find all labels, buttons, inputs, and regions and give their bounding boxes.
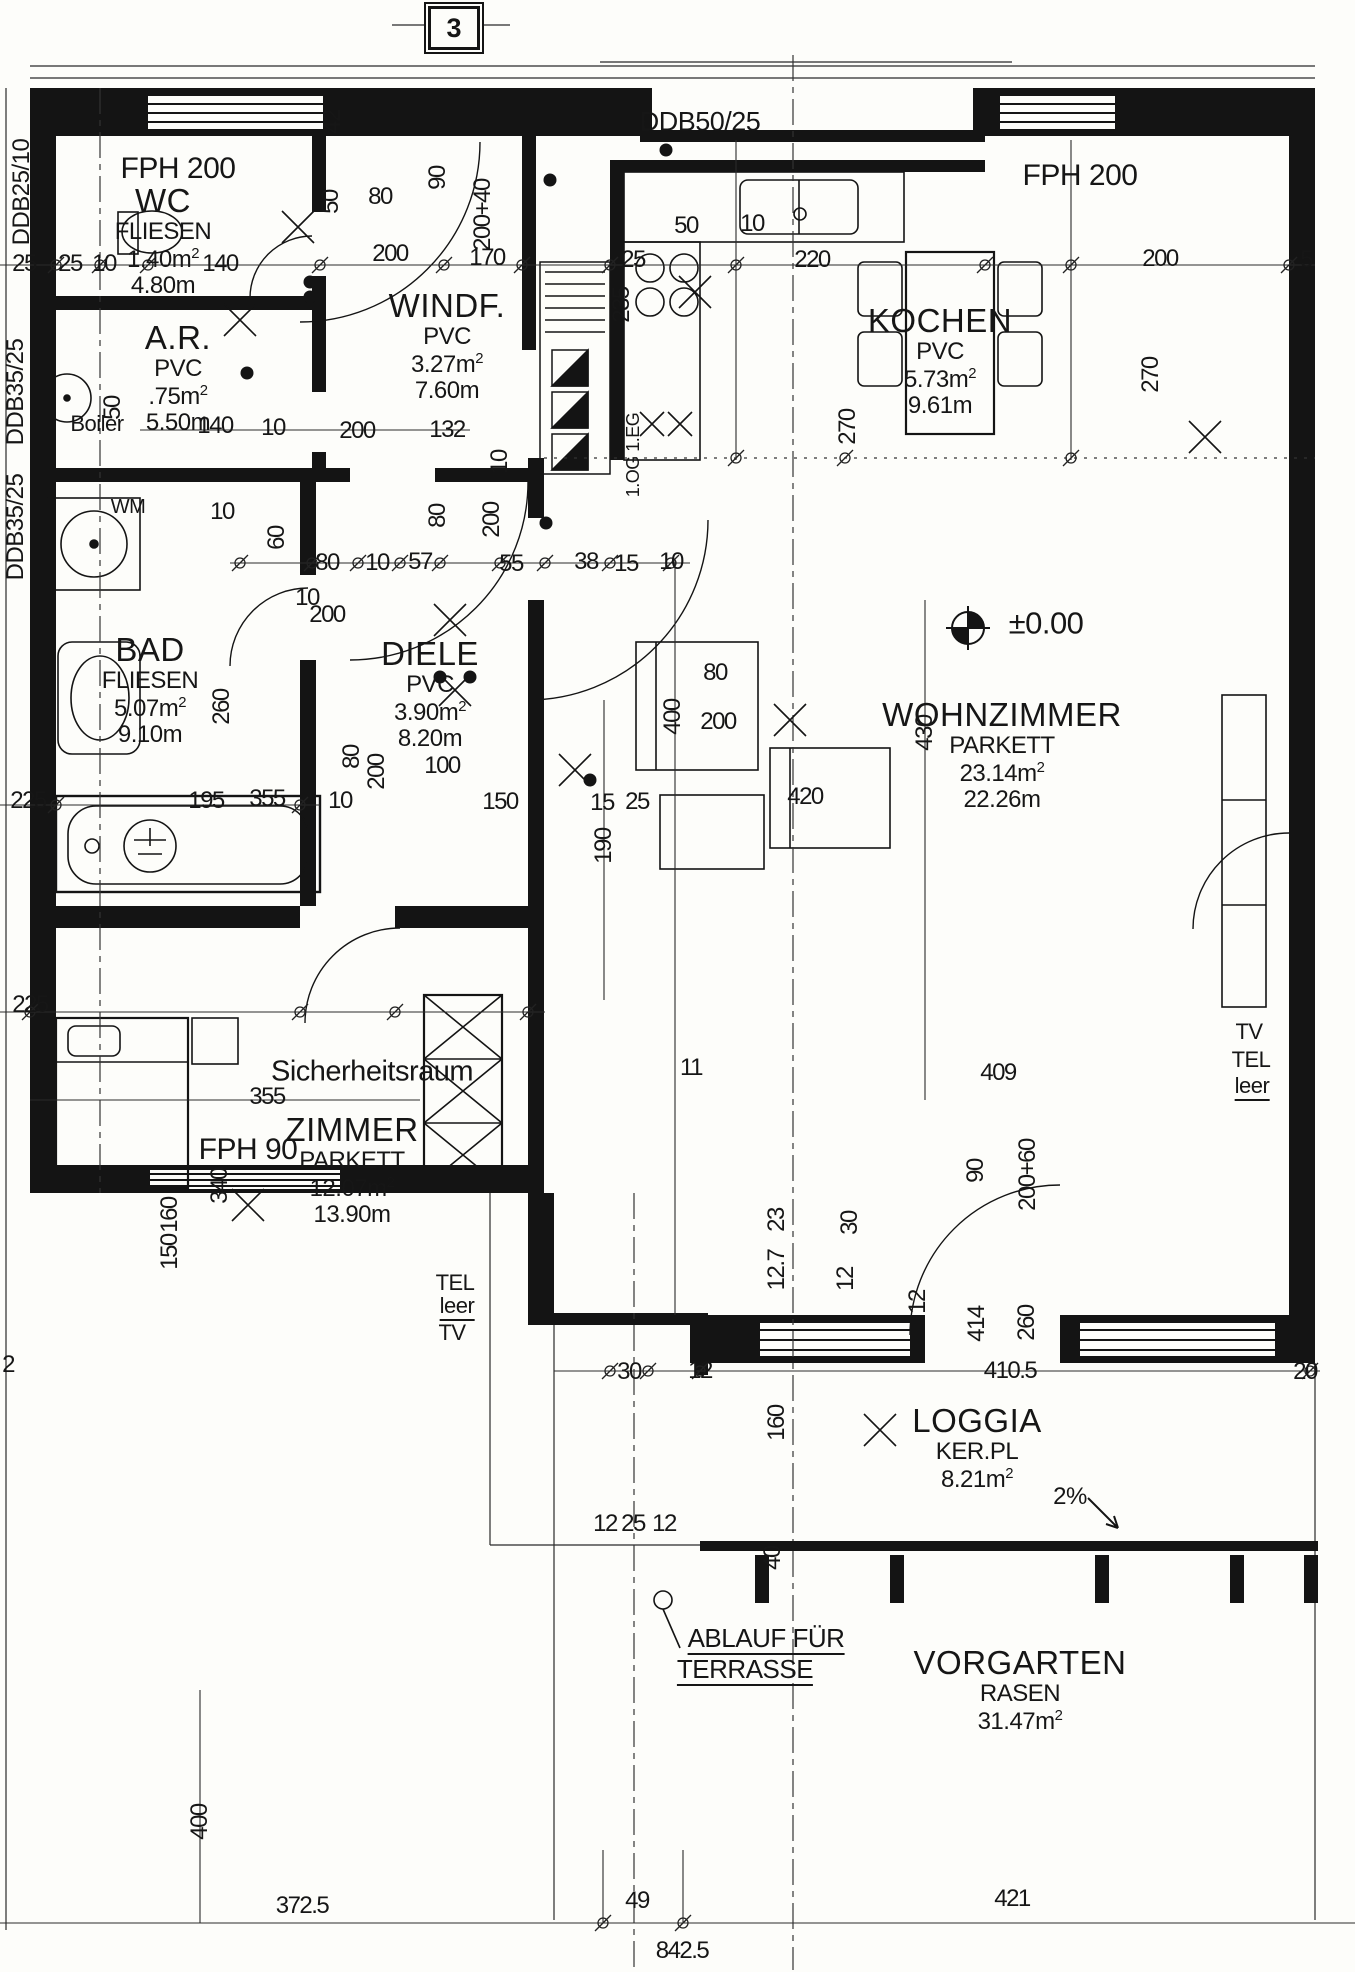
room-floor: KER.PL: [912, 1439, 1042, 1465]
annotation-tel-left: TEL: [436, 1272, 475, 1294]
room-area: 23.14m2: [882, 760, 1122, 787]
dimension-label: 12: [906, 1290, 930, 1314]
room-perimeter: 7.60m: [389, 378, 506, 404]
dimension-label: 10: [92, 252, 116, 276]
room-name: BAD: [102, 632, 199, 668]
room-perimeter: 13.90m: [285, 1202, 418, 1228]
dimension-label: 355: [249, 787, 285, 811]
dimension-label: 160: [765, 1405, 789, 1441]
dimension-label: 200: [1142, 247, 1178, 271]
room-area: 5.07m2: [102, 695, 199, 722]
dimension-label: 132: [429, 418, 465, 442]
dimension-label: 150: [482, 790, 518, 814]
dimension-label: 842.5: [656, 1939, 709, 1963]
room-floor: PARKETT: [285, 1148, 418, 1174]
annotation-boiler: Boiler: [70, 413, 123, 435]
dimension-label: 25: [58, 252, 82, 276]
annotation-leer-left: leer: [440, 1295, 475, 1321]
annotation-fph-200-right: FPH 200: [1023, 161, 1138, 191]
dimension-label: 80: [368, 185, 392, 209]
dimension-label: 260: [210, 689, 234, 725]
dimension-label: 200: [480, 502, 504, 538]
annotation-fph-200-left: FPH 200: [121, 154, 236, 184]
dimension-label: 225: [12, 993, 48, 1017]
room-floor: FLIESEN: [102, 668, 199, 694]
dimension-label: 200+60: [1016, 1139, 1040, 1211]
dimension-label: 10: [328, 789, 352, 813]
dimension-label: 11: [680, 1056, 702, 1080]
room-floor: FLIESEN: [115, 219, 212, 245]
annotation-fph-90: FPH 90: [199, 1135, 298, 1165]
room-floor: RASEN: [914, 1681, 1127, 1707]
room-perimeter: 9.61m: [868, 393, 1012, 419]
room-label-vorgarten: VORGARTENRASEN31.47m2: [914, 1645, 1127, 1735]
floor-plan: 252510140200170255010220200542508090200+…: [0, 0, 1355, 1972]
dimension-label: 12: [688, 1359, 712, 1383]
dimension-label: 400: [188, 1804, 212, 1840]
label-layer: 252510140200170255010220200542508090200+…: [0, 0, 1355, 1972]
dimension-label: 12: [593, 1512, 617, 1536]
dimension-label: 220: [794, 248, 830, 272]
dimension-label: 50: [319, 190, 343, 214]
dimension-label: 25: [621, 1512, 645, 1536]
dimension-label: 410.5: [984, 1359, 1037, 1383]
annotation-sicherheitsraum: Sicherheitsraum: [271, 1058, 473, 1087]
dimension-label: 50: [674, 214, 698, 238]
room-perimeter: 5.50m: [145, 410, 211, 436]
dimension-label: 100: [424, 754, 460, 778]
dimension-label: 409: [980, 1061, 1016, 1085]
annotation-og-eg: 1.OG 1.EG: [624, 413, 642, 498]
room-name: VORGARTEN: [914, 1645, 1127, 1681]
annotation-ablauf: ABLAUF FÜR: [688, 1625, 845, 1655]
dimension-label: 10: [210, 500, 234, 524]
room-label-wc: WCFLIESEN1.40m24.80m: [115, 183, 212, 299]
dimension-label: 225: [10, 789, 46, 813]
dimension-label: 190: [592, 828, 616, 864]
room-floor: PVC: [868, 339, 1012, 365]
dimension-label: 38: [574, 550, 598, 574]
dimension-label: 200: [365, 754, 389, 790]
room-area: .75m2: [145, 383, 211, 410]
annotation-tv-left: TV: [438, 1322, 465, 1344]
annotation-tel-right: TEL: [1232, 1049, 1271, 1071]
dimension-label: 5: [1300, 248, 1312, 272]
dimension-label: 10: [488, 450, 512, 474]
room-perimeter: 9.10m: [102, 722, 199, 748]
dimension-label: 25: [621, 248, 645, 272]
room-area: 12.07m2: [285, 1175, 418, 1202]
dimension-label: 10: [295, 586, 319, 610]
dimension-label: 260: [1015, 1305, 1039, 1341]
room-floor: PVC: [381, 672, 479, 698]
room-floor: PVC: [145, 356, 211, 382]
dimension-label: 200: [339, 419, 375, 443]
dimension-label: 40: [761, 1546, 785, 1570]
dimension-label: 80: [340, 745, 364, 769]
dimension-label: 80: [703, 661, 727, 685]
dimension-label: 20: [1293, 1360, 1317, 1384]
dimension-label: 200+40: [471, 179, 495, 251]
dimension-label: 150: [158, 1234, 182, 1270]
room-perimeter: 22.26m: [882, 787, 1122, 813]
room-name: WC: [115, 183, 212, 219]
dimension-label: 90: [964, 1159, 988, 1183]
room-floor: PARKETT: [882, 733, 1122, 759]
dimension-label: 400: [661, 699, 685, 735]
room-label-kochen: KOCHENPVC5.73m29.61m: [868, 303, 1012, 419]
dimension-label: 25: [625, 790, 649, 814]
annotation-ddb25-10: DDB25/10: [10, 139, 34, 246]
room-label-zimmer: ZIMMERPARKETT12.07m213.90m: [285, 1112, 418, 1228]
dimension-label: 200: [372, 242, 408, 266]
room-label-ar: A.R.PVC.75m25.50m: [145, 320, 211, 436]
dimension-label: 57: [408, 550, 432, 574]
room-area: 1.40m2: [115, 246, 212, 273]
annotation-ddb50-25: DDB50/25: [640, 109, 761, 136]
room-label-diele: DIELEPVC3.90m28.20m: [381, 636, 479, 752]
room-area: 3.90m2: [381, 699, 479, 726]
dimension-label: 80: [426, 504, 450, 528]
dimension-label: 12: [652, 1512, 676, 1536]
dimension-label: 270: [836, 409, 860, 445]
annotation-level: ±0.00: [1009, 608, 1084, 639]
room-name: LOGGIA: [912, 1403, 1042, 1439]
room-name: DIELE: [381, 636, 479, 672]
dimension-label: 30: [617, 1360, 641, 1384]
dimension-label: 414: [965, 1306, 989, 1342]
dimension-label: 10: [659, 550, 683, 574]
sheet-number: 3: [446, 13, 461, 44]
annotation-ddb35-25-a: DDB35/25: [4, 339, 28, 446]
room-name: WINDF.: [389, 288, 506, 324]
sheet-number-box: 3: [428, 6, 480, 50]
dimension-label: 10: [365, 551, 389, 575]
dimension-label: 23: [765, 1208, 789, 1232]
room-name: A.R.: [145, 320, 211, 356]
room-label-windf: WINDF.PVC3.27m27.60m: [389, 288, 506, 404]
dimension-label: 49: [625, 1889, 649, 1913]
dimension-label: 90: [426, 166, 450, 190]
dimension-label: 420: [787, 785, 823, 809]
room-area: 8.21m2: [912, 1466, 1042, 1493]
room-label-wohnzimmer: WOHNZIMMERPARKETT23.14m222.26m: [882, 697, 1122, 813]
dimension-label: 10: [740, 212, 764, 236]
annotation-ddb35-25-b: DDB35/25: [4, 474, 28, 581]
dimension-label: 42: [321, 110, 345, 134]
dimension-label: 55: [499, 552, 523, 576]
room-floor: PVC: [389, 324, 506, 350]
dimension-label: 60: [265, 526, 289, 550]
annotation-slope: 2%: [1053, 1485, 1087, 1509]
dimension-label: 340: [208, 1168, 232, 1204]
dimension-label: 12.7: [765, 1250, 789, 1291]
room-label-loggia: LOGGIAKER.PL8.21m2: [912, 1403, 1042, 1493]
annotation-leer-right: leer: [1235, 1075, 1270, 1101]
room-name: ZIMMER: [285, 1112, 418, 1148]
dimension-label: 160: [158, 1197, 182, 1233]
dimension-label: 2: [2, 1353, 14, 1377]
dimension-label: 80: [315, 551, 339, 575]
room-name: KOCHEN: [868, 303, 1012, 339]
annotation-wm: WM: [111, 497, 146, 517]
room-label-bad: BADFLIESEN5.07m29.10m: [102, 632, 199, 748]
dimension-label: 235: [610, 287, 634, 323]
room-name: WOHNZIMMER: [882, 697, 1122, 733]
dimension-label: 421: [994, 1887, 1030, 1911]
dimension-label: 15: [614, 552, 638, 576]
dimension-label: 25: [12, 252, 36, 276]
dimension-label: 195: [188, 789, 224, 813]
room-perimeter: 8.20m: [381, 726, 479, 752]
dimension-label: 270: [1139, 357, 1163, 393]
room-area: 3.27m2: [389, 351, 506, 378]
room-area: 31.47m2: [914, 1708, 1127, 1735]
annotation-terrasse: TERRASSE: [677, 1656, 813, 1686]
dimension-label: 10: [261, 416, 285, 440]
dimension-label: 15: [590, 791, 614, 815]
dimension-label: 200: [700, 710, 736, 734]
dimension-label: 12: [834, 1267, 858, 1291]
room-area: 5.73m2: [868, 366, 1012, 393]
room-perimeter: 4.80m: [115, 273, 212, 299]
dimension-label: 372.5: [276, 1894, 329, 1918]
dimension-label: 355: [249, 1085, 285, 1109]
dimension-label: 30: [838, 1211, 862, 1235]
annotation-tv-right: TV: [1235, 1021, 1262, 1043]
